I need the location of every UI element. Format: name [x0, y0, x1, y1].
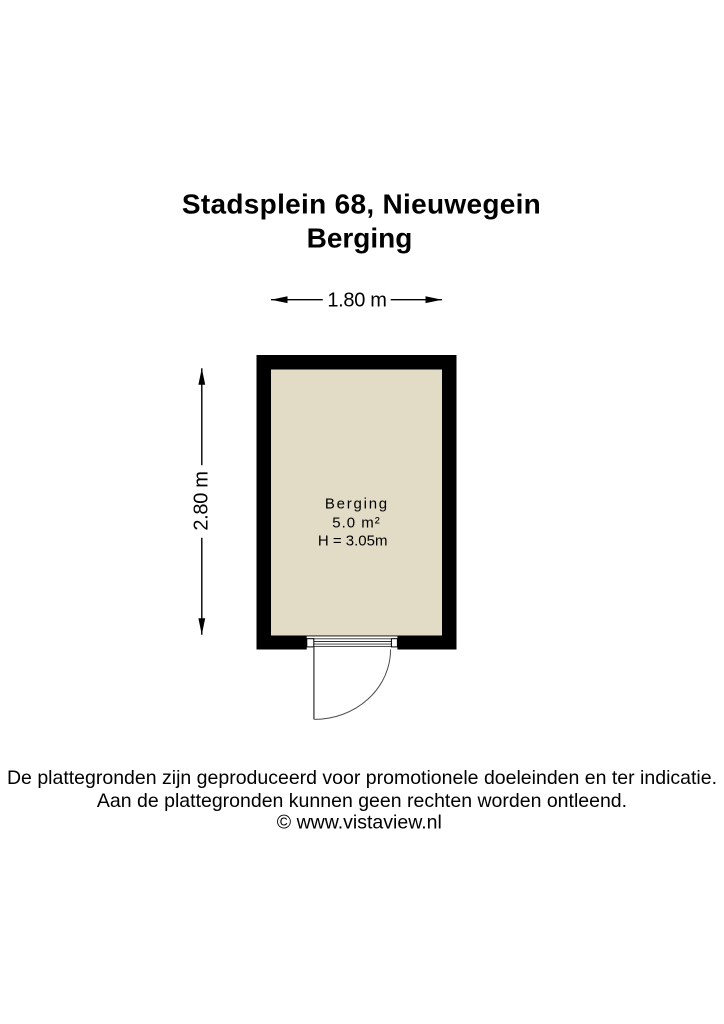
svg-text:Berging: Berging — [325, 496, 389, 513]
svg-text:2.80 m: 2.80 m — [190, 471, 212, 530]
svg-text:Berging: Berging — [307, 223, 413, 254]
svg-text:1.80 m: 1.80 m — [327, 290, 386, 312]
svg-text:5.0 m²: 5.0 m² — [332, 514, 381, 531]
svg-text:De plattegronden zijn geproduc: De plattegronden zijn geproduceerd voor … — [7, 767, 717, 789]
svg-text:H = 3.05m: H = 3.05m — [318, 533, 388, 550]
svg-text:© www.vistaview.nl: © www.vistaview.nl — [277, 811, 442, 833]
svg-text:Stadsplein 68, Nieuwegein: Stadsplein 68, Nieuwegein — [182, 189, 541, 220]
svg-text:Aan de plattegronden kunnen ge: Aan de plattegronden kunnen geen rechten… — [97, 790, 627, 812]
